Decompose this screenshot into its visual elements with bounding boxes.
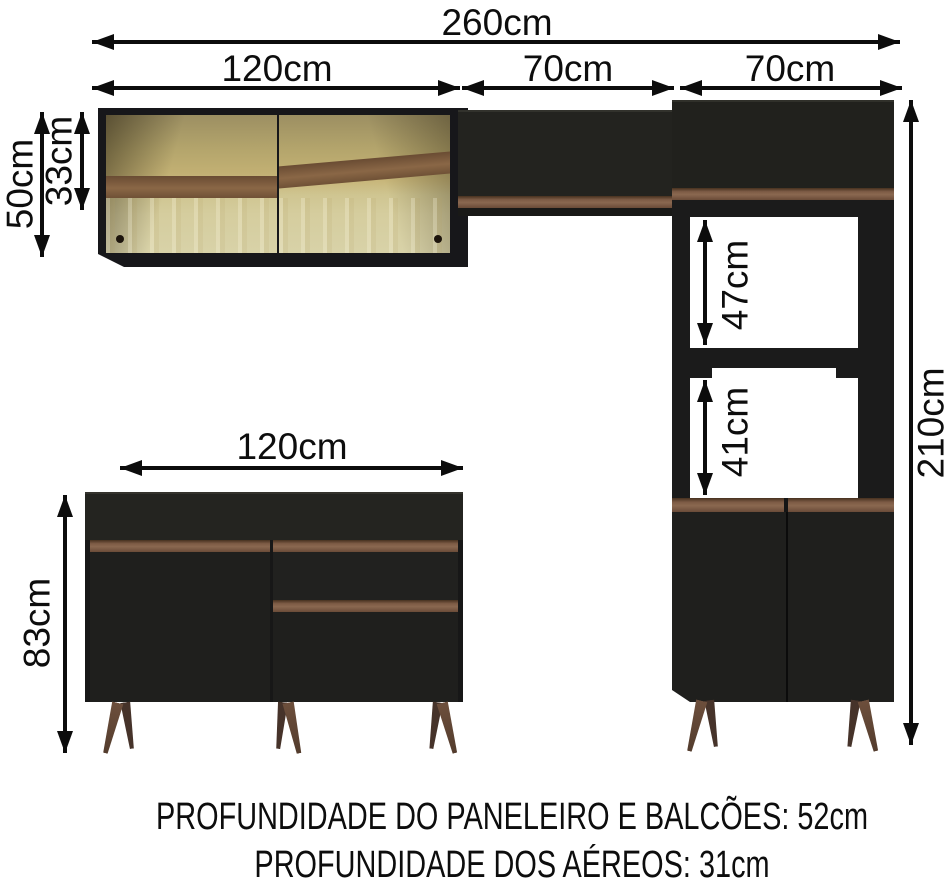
cabinet-leg xyxy=(98,701,125,755)
dim-label-base-width: 120cm xyxy=(236,428,347,465)
cabinet-leg xyxy=(682,699,709,753)
wood-handle-strip xyxy=(672,498,784,512)
wood-handle-strip xyxy=(672,188,894,200)
dim-arrow-base-width xyxy=(120,466,463,470)
dim-arrow-niche-upper xyxy=(703,220,707,345)
cabinet-leg xyxy=(435,701,462,755)
base-cabinet xyxy=(85,492,463,702)
tall-cabinet-upper-door xyxy=(672,100,894,188)
dim-label-upper-mid-width: 70cm xyxy=(523,50,613,87)
dim-arrow-upper-mid-width xyxy=(462,86,674,90)
door-gap-line xyxy=(786,512,788,702)
cabinet-leg xyxy=(856,699,883,753)
door-knob-left xyxy=(116,235,124,243)
dim-arrow-niche-lower xyxy=(703,380,707,495)
dim-label-wall-height: 50cm xyxy=(2,139,39,229)
dim-arrow-upper-left-width xyxy=(92,86,460,90)
glass-sliding-door-left xyxy=(106,115,277,253)
depth-note-text: PROFUNDIDADE DOS AÉREOS: 31cm xyxy=(254,845,769,887)
base-cabinet-drawer-top xyxy=(273,552,458,600)
dim-label-upper-left-width: 120cm xyxy=(221,50,332,87)
dim-label-niche-lower: 41cm xyxy=(717,387,754,477)
cabinet-leg xyxy=(281,701,306,755)
wood-handle-strip xyxy=(788,498,894,512)
glass-shelf-reflections xyxy=(106,198,277,253)
dim-label-upper-right-width: 70cm xyxy=(745,50,835,87)
wood-handle-strip xyxy=(273,600,458,612)
depth-note-paneleiro-balcoes: PROFUNDIDADE DO PANELEIRO E BALCÕES: 52c… xyxy=(44,797,948,839)
glass-reflection-band xyxy=(106,176,277,198)
base-cabinet-drawer-bottom xyxy=(273,612,458,702)
base-cabinet-door xyxy=(90,552,270,702)
shelf-support-left xyxy=(690,368,712,378)
wall-cabinet-glass xyxy=(98,108,468,267)
wood-handle-strip xyxy=(458,196,672,208)
dim-label-base-height: 83cm xyxy=(19,578,56,668)
glass-shelf-reflections xyxy=(279,198,450,253)
wall-cabinet-mid xyxy=(458,110,672,216)
dim-arrow-wall-inner-height xyxy=(80,112,84,210)
glass-sliding-door-right xyxy=(279,115,450,253)
depth-note-aereos: PROFUNDIDADE DOS AÉREOS: 31cm xyxy=(173,845,851,887)
dim-arrow-base-height xyxy=(63,495,67,753)
shelf-support-right xyxy=(836,368,858,378)
base-cabinet-top-panel xyxy=(85,492,463,540)
dim-arrow-upper-right-width xyxy=(680,86,902,90)
door-knob-right xyxy=(434,235,442,243)
furniture-dimension-diagram: 260cm 120cm 70cm 70cm 50cm 33cm xyxy=(0,0,948,892)
wood-handle-strip xyxy=(273,540,458,552)
dim-label-total-height: 210cm xyxy=(913,367,948,478)
dim-label-niche-upper: 47cm xyxy=(717,240,754,330)
wall-cabinet-mid-door xyxy=(458,110,672,196)
wood-handle-strip xyxy=(90,540,270,552)
dim-arrow-total-width xyxy=(92,40,900,44)
dim-label-wall-inner-height: 33cm xyxy=(41,116,78,206)
depth-note-text: PROFUNDIDADE DO PANELEIRO E BALCÕES: 52c… xyxy=(156,797,868,839)
dim-label-total-width: 260cm xyxy=(441,4,552,41)
tall-cabinet-handle-row xyxy=(672,498,894,512)
tall-cabinet-doors xyxy=(672,512,894,702)
